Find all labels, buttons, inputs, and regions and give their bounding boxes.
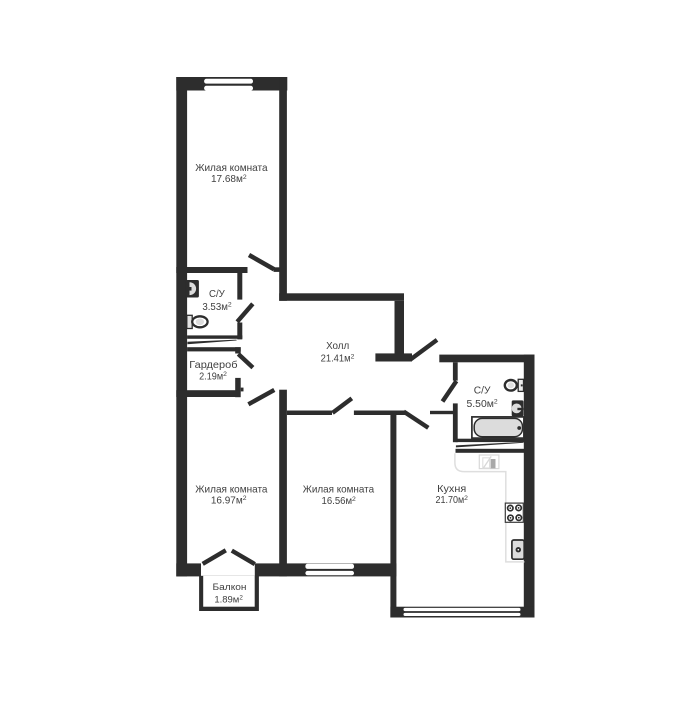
svg-text:2.19м2: 2.19м2	[199, 371, 227, 382]
svg-text:Кухня: Кухня	[437, 484, 466, 495]
svg-text:16.56м2: 16.56м2	[322, 496, 357, 507]
svg-text:Жилая комната: Жилая комната	[195, 163, 268, 174]
svg-text:16.97м2: 16.97м2	[211, 495, 247, 506]
svg-text:21.41м2: 21.41м2	[321, 353, 355, 364]
svg-text:3.53м2: 3.53м2	[202, 301, 232, 312]
svg-text:Холл: Холл	[326, 341, 349, 352]
svg-text:17.68м2: 17.68м2	[211, 174, 247, 185]
svg-text:Гардероб: Гардероб	[189, 359, 237, 371]
svg-text:Балкон: Балкон	[213, 582, 247, 593]
svg-text:С/У: С/У	[474, 385, 491, 396]
svg-text:5.50м2: 5.50м2	[467, 399, 498, 410]
svg-text:Жилая комната: Жилая комната	[303, 485, 375, 496]
svg-text:С/У: С/У	[209, 289, 225, 300]
svg-text:21.70м2: 21.70м2	[435, 495, 468, 506]
svg-text:1.89м2: 1.89м2	[214, 593, 243, 604]
svg-text:Жилая комната: Жилая комната	[195, 485, 267, 496]
